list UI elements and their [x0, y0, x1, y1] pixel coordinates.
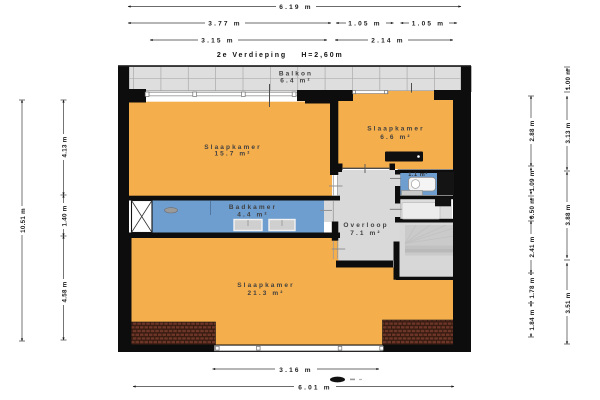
svg-text:Slaapkamer: Slaapkamer: [367, 126, 425, 133]
svg-text:2e Verdieping: 2e Verdieping: [217, 52, 287, 59]
svg-text:6.6 m²: 6.6 m²: [380, 134, 411, 141]
svg-text:1.84 m: 1.84 m: [529, 309, 536, 330]
svg-text:6.4 m²: 6.4 m²: [280, 78, 311, 85]
svg-text:1.05 m: 1.05 m: [348, 21, 381, 28]
svg-text:4.4 m²: 4.4 m²: [237, 212, 268, 219]
svg-text:10.51 m: 10.51 m: [20, 208, 27, 233]
svg-text:3.15 m: 3.15 m: [201, 38, 234, 45]
svg-text:3.51 m: 3.51 m: [565, 292, 572, 313]
svg-text:21.3 m²: 21.3 m²: [247, 290, 284, 297]
svg-text:4.58 m: 4.58 m: [61, 281, 68, 302]
svg-text:6.01 m: 6.01 m: [298, 384, 331, 391]
svg-text:15.7 m²: 15.7 m²: [214, 151, 251, 158]
svg-text:2.14 m: 2.14 m: [371, 38, 404, 45]
svg-text:3.16 m: 3.16 m: [279, 367, 312, 374]
svg-text:6.19 m: 6.19 m: [279, 4, 312, 11]
svg-text:Overloop: Overloop: [343, 222, 388, 229]
svg-text:Slaapkamer: Slaapkamer: [237, 282, 295, 289]
svg-text:H=2,60m: H=2,60m: [301, 52, 343, 59]
svg-text:1.40 m: 1.40 m: [61, 205, 68, 226]
svg-text:Balkon: Balkon: [279, 71, 313, 78]
svg-text:0.50 m: 0.50 m: [529, 198, 536, 219]
svg-text:1.1 m²: 1.1 m²: [408, 171, 428, 178]
svg-text:1.00 m: 1.00 m: [565, 69, 572, 90]
svg-text:2.41 m: 2.41 m: [529, 236, 536, 257]
svg-text:3.77 m: 3.77 m: [208, 21, 241, 28]
svg-text:3.13 m: 3.13 m: [565, 122, 572, 143]
svg-text:2.88 m: 2.88 m: [529, 120, 536, 141]
svg-text:3.88 m: 3.88 m: [565, 204, 572, 225]
svg-text:7.1 m²: 7.1 m²: [350, 230, 381, 237]
svg-text:1.09 m: 1.09 m: [529, 170, 536, 191]
svg-text:1.78 m: 1.78 m: [529, 277, 536, 298]
svg-text:1.05 m: 1.05 m: [412, 21, 445, 28]
svg-text:4.13 m: 4.13 m: [61, 136, 68, 157]
svg-text:Badkamer: Badkamer: [229, 204, 277, 211]
